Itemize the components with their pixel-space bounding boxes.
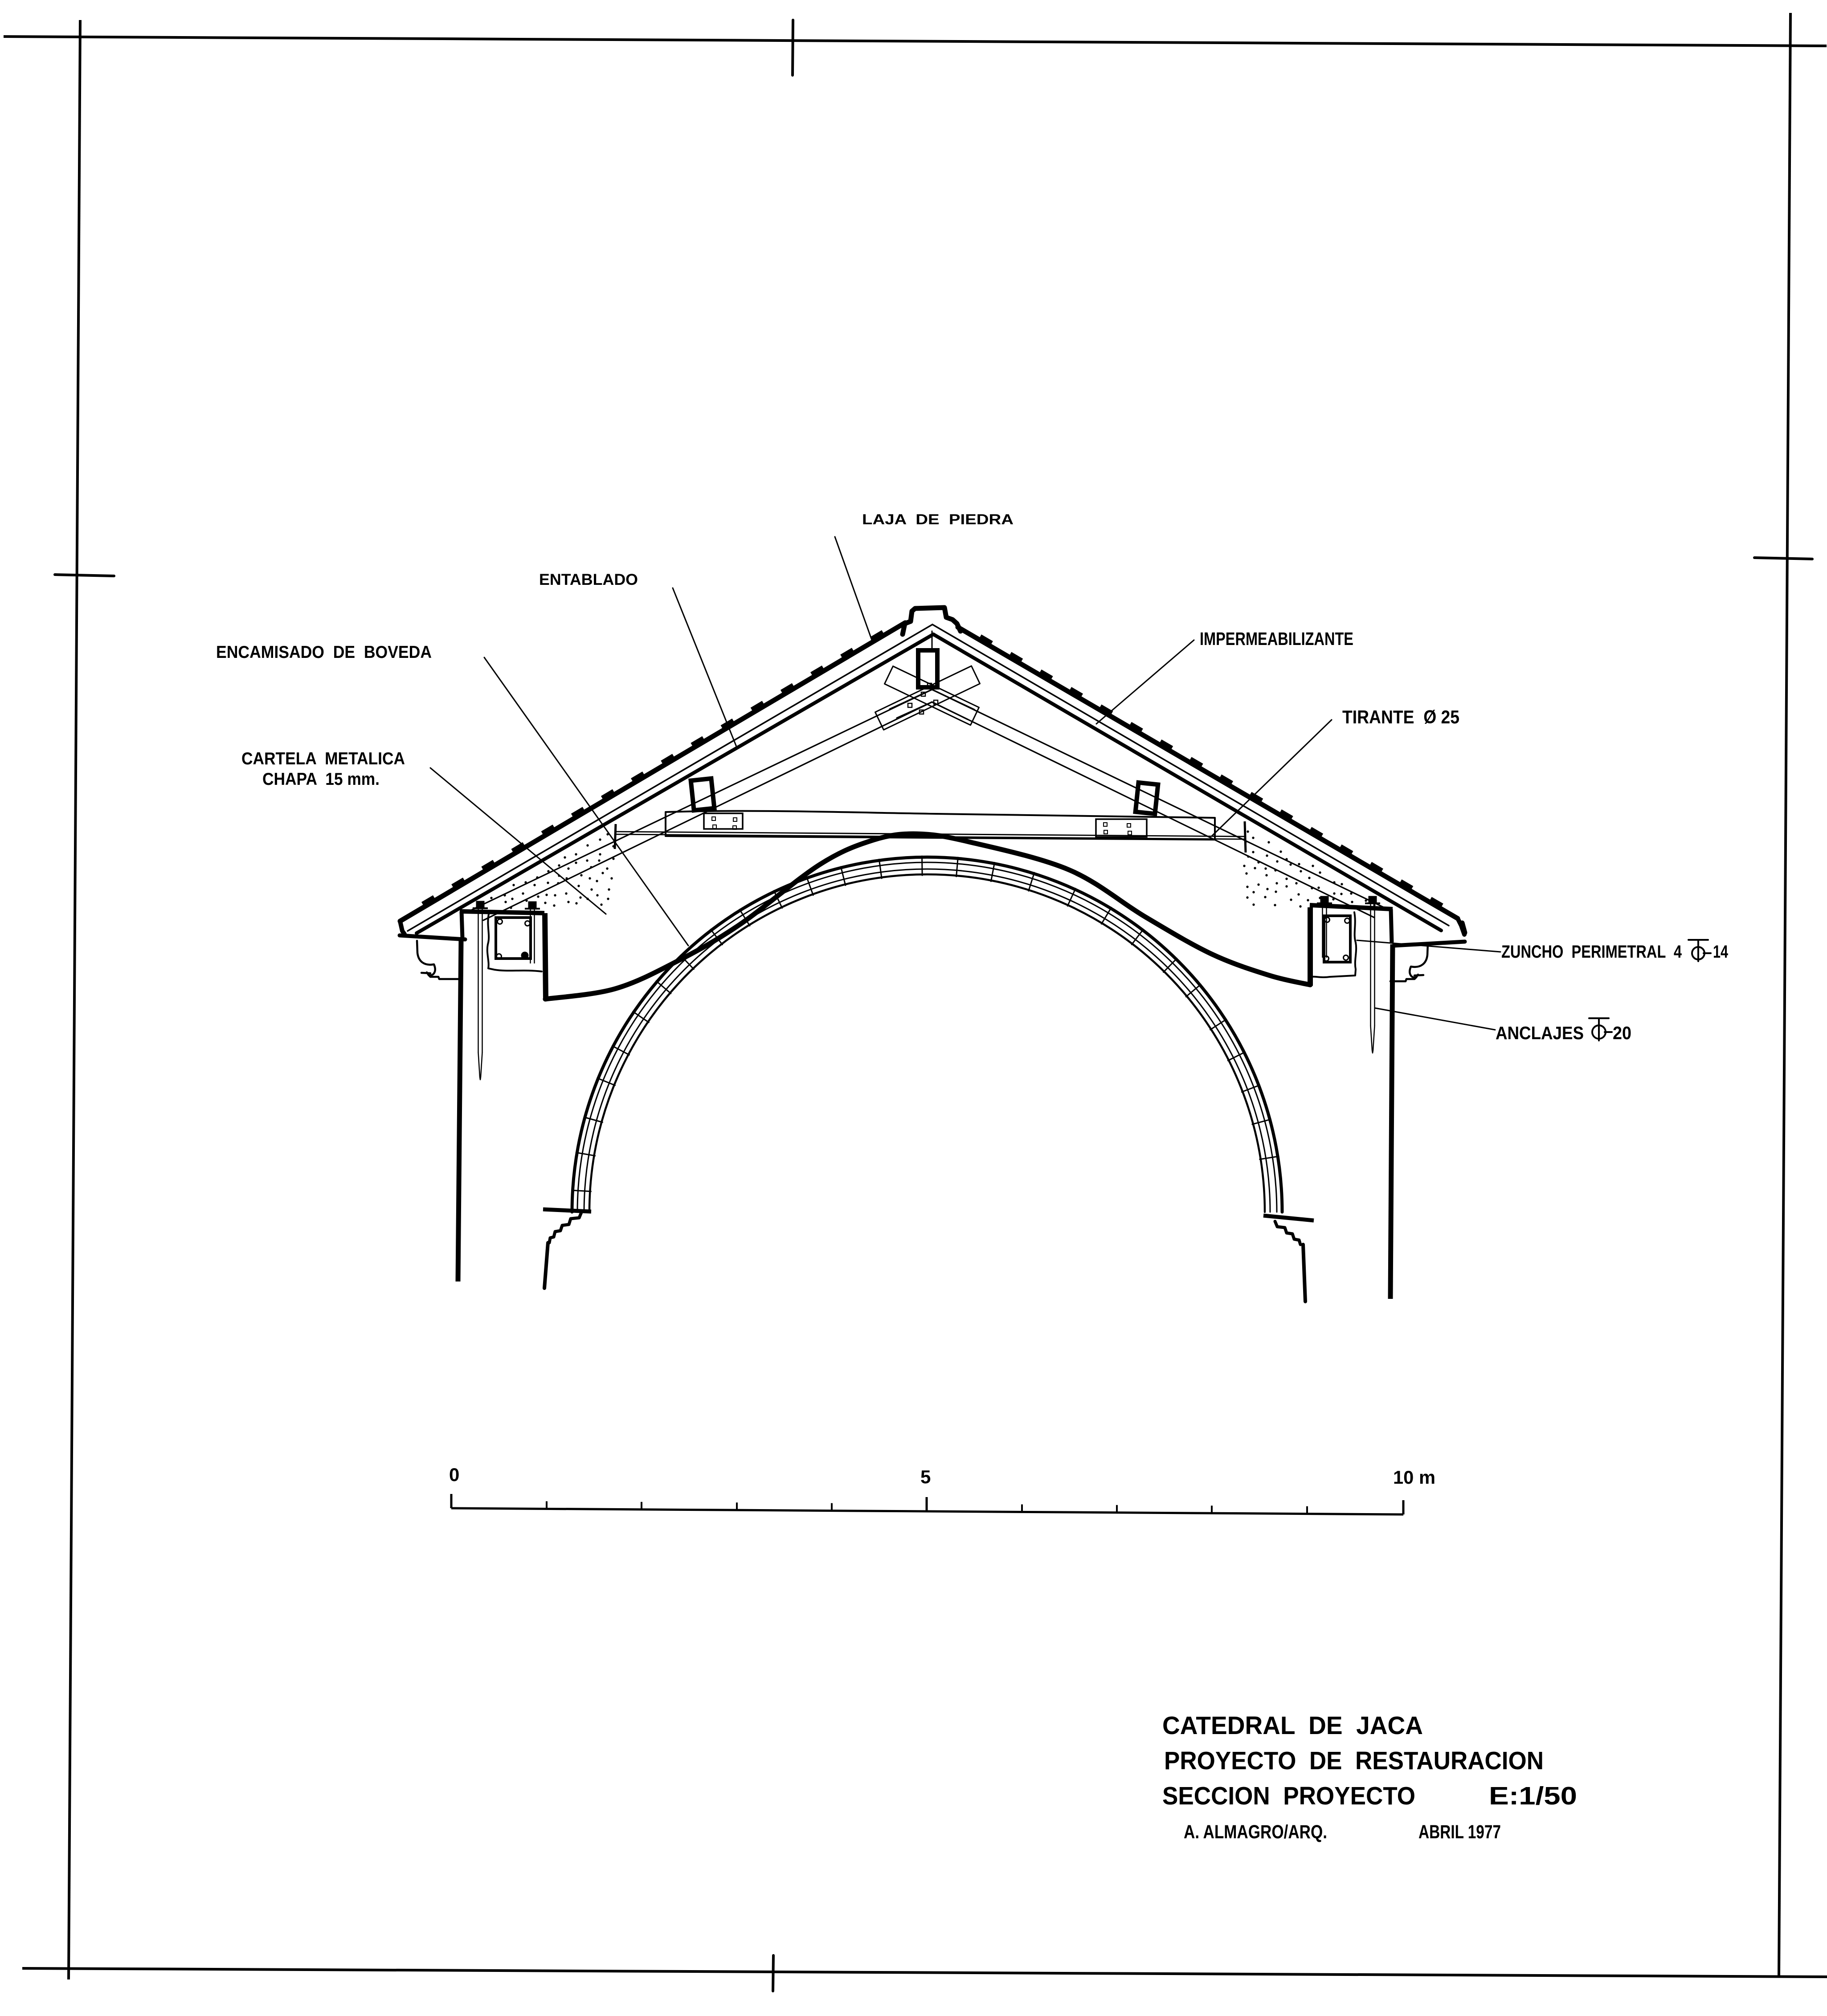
svg-text:ENTABLADO: ENTABLADO — [539, 571, 638, 588]
svg-text:IMPERMEABILIZANTE: IMPERMEABILIZANTE — [1200, 628, 1353, 649]
svg-text:CHAPA 15 mm.: CHAPA 15 mm. — [262, 770, 380, 789]
svg-text:E:1/50: E:1/50 — [1489, 1782, 1577, 1810]
svg-text:5: 5 — [920, 1466, 931, 1487]
svg-text:PROYECTO DE RESTAURACION: PROYECTO DE RESTAURACION — [1164, 1747, 1544, 1775]
svg-text:SECCION PROYECTO: SECCION PROYECTO — [1162, 1782, 1415, 1810]
svg-text:CARTELA METALICA: CARTELA METALICA — [241, 749, 405, 768]
svg-text:CATEDRAL DE JACA: CATEDRAL DE JACA — [1162, 1711, 1423, 1740]
svg-text:14: 14 — [1713, 942, 1729, 962]
svg-text:TIRANTE Ø 25: TIRANTE Ø 25 — [1342, 706, 1459, 727]
svg-text:LAJA DE PIEDRA: LAJA DE PIEDRA — [862, 511, 1014, 527]
svg-text:20: 20 — [1613, 1023, 1631, 1043]
svg-text:ENCAMISADO DE BOVEDA: ENCAMISADO DE BOVEDA — [216, 643, 432, 662]
svg-text:0: 0 — [449, 1464, 459, 1485]
svg-text:10 m: 10 m — [1393, 1467, 1435, 1488]
svg-text:ABRIL 1977: ABRIL 1977 — [1418, 1821, 1501, 1843]
svg-text:ZUNCHO PERIMETRAL 4: ZUNCHO PERIMETRAL 4 — [1501, 942, 1682, 962]
svg-text:A. ALMAGRO/ARQ.: A. ALMAGRO/ARQ. — [1184, 1821, 1327, 1843]
svg-text:ANCLAJES: ANCLAJES — [1496, 1023, 1584, 1043]
